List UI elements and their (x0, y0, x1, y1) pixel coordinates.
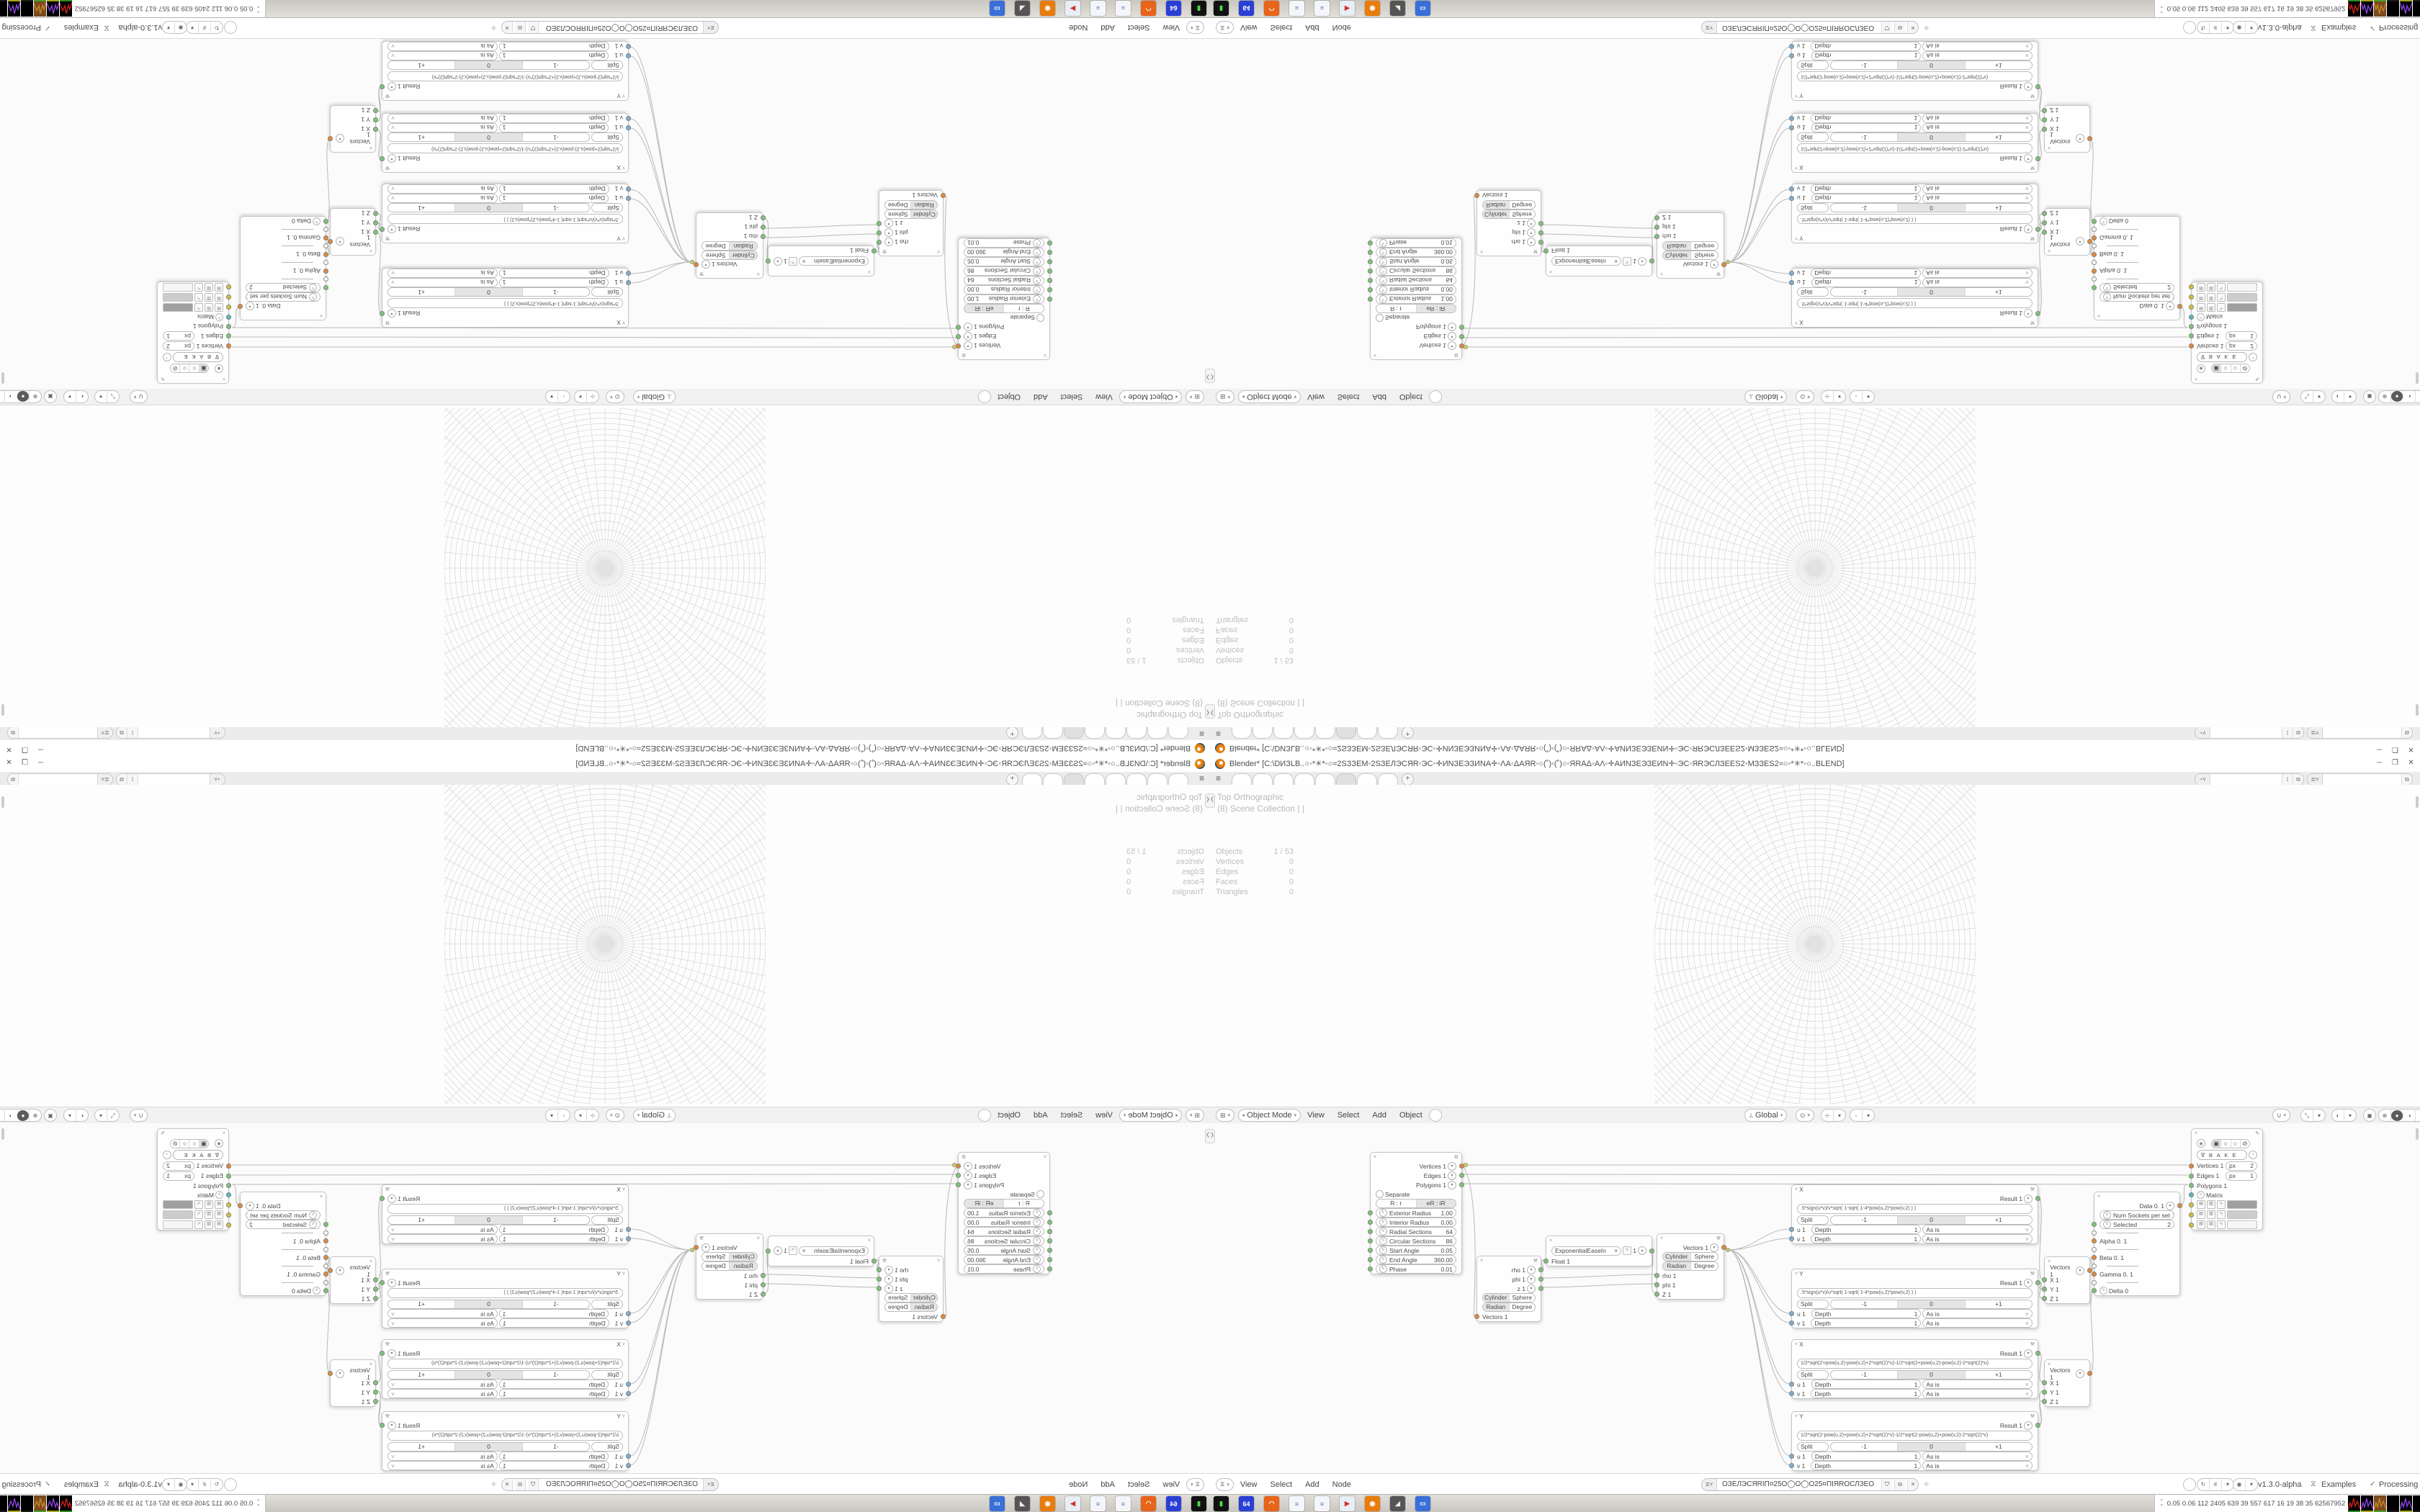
segment-option[interactable]: +1 (388, 204, 454, 212)
segment-option[interactable]: Cylinder (911, 1294, 938, 1302)
segment-option[interactable]: +1 (388, 62, 454, 70)
taskbar-icon-notepad[interactable]: ≡ (1090, 1496, 1106, 1511)
socket[interactable] (2035, 156, 2040, 161)
examples-menu[interactable]: Examples (2321, 1480, 2356, 1489)
segment-option[interactable]: -1 (1831, 1443, 1898, 1451)
palette-icon[interactable]: ▤ (2197, 1210, 2205, 1219)
curve-icon[interactable]: ∿ (2217, 303, 2226, 312)
socket[interactable] (1789, 44, 1794, 49)
draw-mode-option[interactable]: ⊘ (171, 365, 179, 373)
segment-option[interactable]: +1 (388, 1443, 454, 1451)
enum-dropdown[interactable]: As is˅ (1922, 194, 2033, 203)
node-header[interactable]: ˅X⚒ (382, 1185, 628, 1194)
view-layer-field[interactable] (19, 727, 97, 738)
menu-view[interactable]: View (1163, 1480, 1180, 1489)
socket[interactable] (2042, 1277, 2047, 1282)
color-swatch[interactable] (163, 293, 193, 302)
draw-mode-option[interactable]: ○ (2231, 365, 2241, 373)
mode-selector[interactable]: ▪Object Mode▾ (1238, 1109, 1301, 1122)
node-header[interactable]: ˅✎ (2192, 1129, 2262, 1138)
editor-scrollbar[interactable] (1, 372, 4, 384)
socket[interactable] (2092, 1264, 2097, 1269)
collapse-icon[interactable]: ˅ (622, 1187, 625, 1192)
pin-star-icon[interactable]: ✧ (490, 1480, 497, 1489)
expand-tray-icon[interactable]: ⌃⌃ (256, 1499, 261, 1509)
wrap-mode-switch[interactable]: -10+1 (387, 288, 590, 297)
chevron-down-icon[interactable]: ▾ (964, 1181, 972, 1189)
segment-option[interactable]: +1 (1966, 62, 2032, 70)
segment-option[interactable]: Sphere (702, 251, 730, 259)
node-header[interactable]: ˅⚙ (959, 351, 1049, 359)
collapse-icon[interactable]: ˅ (1795, 166, 1798, 171)
depth-field[interactable]: Depth1 (1811, 1309, 1922, 1318)
workspace-tab[interactable] (1252, 726, 1273, 739)
chevron-down-icon[interactable]: ▾ (774, 257, 782, 266)
menu-object[interactable]: Object (998, 1111, 1021, 1120)
workspace-tab[interactable] (1273, 726, 1294, 739)
node-data[interactable]: ˅Data 0. 1▾↻Num Sockets per set1↻Selecte… (240, 216, 326, 320)
toggle-circle[interactable] (1036, 1190, 1044, 1198)
depth-field[interactable]: Depth1 (1811, 51, 1922, 60)
enum-dropdown[interactable]: As is˅ (387, 1452, 498, 1461)
depth-field[interactable]: Depth1 (499, 1309, 609, 1318)
socket[interactable] (1368, 1266, 1373, 1272)
segment-option[interactable]: +1 (388, 134, 454, 142)
node-vector-in-2[interactable]: ˅Vectors 1▾X 1Y 1Z 1 (330, 105, 376, 153)
chevron-down-icon[interactable]: ▾ (246, 302, 254, 311)
draft-mode-button[interactable]: ◉▾ (2233, 22, 2258, 35)
socket[interactable] (626, 1320, 631, 1326)
node-formula-x2[interactable]: ˅X⚒Result 1▾1/2*sqrt(2+pow(u,2)-pow(v,2)… (382, 1339, 629, 1399)
segmented-switch[interactable]: CylinderSphere (1662, 1252, 1718, 1261)
taskbar-icon-firefox[interactable]: ◠ (1141, 1496, 1156, 1511)
socket[interactable] (323, 1280, 328, 1285)
node-vector-in-1[interactable]: ˅Vectors 1▾X 1Y 1Z 1 (330, 1256, 376, 1304)
number-field[interactable]: ↻Selected2 (246, 283, 321, 292)
collapse-icon[interactable]: ˅ (223, 1131, 225, 1136)
socket[interactable] (2092, 1255, 2097, 1260)
socket[interactable] (373, 1296, 378, 1301)
segment-option[interactable]: Sphere (1510, 210, 1536, 218)
segmented-switch[interactable]: CylinderSphere (702, 1252, 758, 1261)
depth-field[interactable]: Depth1 (499, 1461, 609, 1470)
socket[interactable] (626, 1227, 631, 1232)
socket[interactable] (626, 1391, 631, 1396)
socket[interactable] (877, 230, 882, 235)
node-tree-name[interactable]: ОЗЕЛЭСЯRIП¤25О◯О◯О25¤ПIЯRОСЛЗЕО (1719, 1480, 1879, 1488)
socket[interactable] (2189, 1202, 2194, 1207)
node-tree-name[interactable]: ОЗЕЛЭСЯRIП¤25О◯О◯О25¤ПIЯRОСЛЗЕО (541, 1480, 701, 1488)
socket[interactable] (2189, 1212, 2194, 1218)
number-field[interactable]: ↻Num Sockets per set1 (246, 1210, 321, 1220)
node-header[interactable]: ˅ (768, 1236, 874, 1245)
collapse-icon[interactable]: ˅ (1795, 1272, 1798, 1277)
close-button[interactable]: ✕ (4, 744, 14, 754)
segmented-switch[interactable]: RadianDegree (884, 1302, 938, 1312)
chevron-down-icon[interactable]: ▾ (2076, 135, 2084, 143)
chevron-down-icon[interactable]: ▾ (387, 1279, 396, 1287)
node-header[interactable]: ˅⚒ (1477, 1256, 1541, 1265)
socket[interactable] (373, 1380, 378, 1385)
copy-icon[interactable]: ⧉ (8, 774, 19, 785)
node-polar-out[interactable]: ˅⚒rho 1▾phi 1▾z 1▾CylinderSphereRadianDe… (1476, 1256, 1541, 1322)
segment-option[interactable]: 0 (1898, 204, 1965, 212)
formula-field[interactable]: .5*sign(u*v)/v*sqrt( 1-sqrt( 1-4*pow(u,2… (387, 298, 623, 308)
viewport-scrollbar[interactable] (1, 796, 4, 808)
easing-dropdown[interactable]: ExponentialEaseIn˅ (799, 1246, 869, 1256)
socket[interactable] (1047, 278, 1052, 283)
depth-field[interactable]: Depth1 (499, 1225, 609, 1234)
segment-option[interactable]: Degree (702, 1262, 730, 1270)
chevron-down-icon[interactable]: ▾ (387, 1349, 396, 1358)
menu-hamburger-icon[interactable]: ≡ (1216, 729, 1221, 739)
node-formula-x2[interactable]: ˅X⚒Result 1▾1/2*sqrt(2+pow(u,2)-pow(v,2)… (1791, 113, 2038, 173)
socket[interactable] (1543, 248, 1549, 253)
bake-button[interactable]: ∇B A K E (173, 352, 223, 362)
socket[interactable] (2177, 304, 2182, 309)
transform-widget-button[interactable] (978, 1109, 991, 1122)
socket[interactable] (226, 324, 231, 329)
socket[interactable] (323, 1255, 328, 1260)
restore-button[interactable]: ❐ (2390, 744, 2400, 754)
socket[interactable] (2092, 1280, 2097, 1285)
depth-field[interactable]: Depth1 (1811, 194, 1922, 203)
list-icon[interactable]: ▥ (2207, 293, 2215, 302)
segment-option[interactable]: 0 (1898, 1443, 1965, 1451)
display-toggle-icon[interactable]: ◉ (2197, 1139, 2205, 1148)
socket[interactable] (2042, 1380, 2047, 1385)
wrap-mode-switch[interactable]: -10+1 (1830, 204, 2033, 213)
socket[interactable] (1368, 1257, 1373, 1262)
tool-icon[interactable]: ⚒ (2030, 93, 2035, 99)
workspace-tab[interactable] (1168, 726, 1188, 739)
wrap-mode-switch[interactable]: -10+1 (1830, 1300, 2033, 1309)
node-header[interactable]: ˅X⚒ (1792, 1185, 2038, 1194)
segment-option[interactable]: Cylinder (1483, 1294, 1510, 1302)
wrap-mode-switch[interactable]: -10+1 (387, 1442, 590, 1452)
collapse-icon[interactable]: ˅ (2048, 248, 2051, 253)
examples-menu[interactable]: Examples (2321, 24, 2356, 32)
number-field[interactable]: ↻Interior Radius0.00 (964, 285, 1044, 294)
node-data[interactable]: ˅Data 0. 1▾↻Num Sockets per set1↻Selecte… (2094, 1192, 2180, 1296)
socket[interactable] (761, 1273, 766, 1278)
draw-mode-icons[interactable]: ▣○○⊘ (2211, 364, 2250, 374)
copy-icon[interactable]: ⧉ (1894, 22, 1905, 34)
enum-dropdown[interactable]: As is˅ (387, 114, 498, 123)
system-monitor-panel[interactable]: ⌃⌃ 0.05 0.06 112 2405 639 39 557 617 16 … (2154, 0, 2420, 17)
draft-mode-button[interactable]: ◉▾ (162, 22, 187, 35)
snap-magnet-button[interactable]: ∪▾ (130, 390, 148, 403)
proportional-falloff-button[interactable]: ⤡▾ (2300, 1109, 2326, 1122)
chevron-down-icon[interactable]: ▾ (2024, 1349, 2033, 1358)
transform-widget-button[interactable] (1429, 390, 1442, 403)
socket[interactable] (941, 193, 946, 198)
chevron-down-icon[interactable]: ▾ (1527, 220, 1536, 228)
socket[interactable] (2092, 285, 2097, 290)
scene-name-field[interactable] (2210, 774, 2282, 785)
snap-magnet-button[interactable]: ∪▾ (2272, 1109, 2290, 1122)
segment-option[interactable]: -1 (522, 1216, 589, 1224)
node-header[interactable]: ˅X⚒ (1792, 1340, 2038, 1349)
collapse-icon[interactable]: ˅ (2097, 1194, 2100, 1200)
segment-option[interactable]: +1 (1966, 1216, 2032, 1224)
menu-view[interactable]: View (1240, 24, 1258, 32)
node-header[interactable]: ˅⚒ (1657, 269, 1724, 278)
socket[interactable] (1543, 1259, 1549, 1264)
pencil-icon[interactable]: ✎ (161, 376, 165, 382)
taskbar-icon-speaker[interactable]: ◢ (1015, 1496, 1030, 1511)
node-cylinder[interactable]: ˅⚙Vertices 1▾Edges 1▾Polygons 1▾Separate… (1370, 1152, 1462, 1274)
update-cycle-button[interactable]: ↻#▾ (186, 1478, 223, 1491)
orientation-selector[interactable]: ⟂Global▾ (633, 390, 676, 403)
reroute-dot[interactable] (1726, 1248, 1730, 1252)
list-icon[interactable]: ▥ (2207, 283, 2215, 292)
segmented-switch[interactable]: R : reR : iR (964, 304, 1044, 313)
enum-dropdown[interactable]: As is˅ (387, 123, 498, 132)
taskbar-icon-firefox[interactable]: ◠ (1141, 1, 1156, 16)
workspace-tab[interactable] (1357, 773, 1377, 786)
chevron-down-icon[interactable]: ▾ (884, 220, 893, 228)
node-data[interactable]: ˅Data 0. 1▾↻Num Sockets per set1↻Selecte… (2094, 216, 2180, 320)
system-monitor-panel[interactable]: ⌃⌃ 0.05 0.06 112 2405 639 39 557 617 16 … (0, 1495, 266, 1512)
socket[interactable] (1459, 325, 1464, 330)
collapse-icon[interactable]: ˅ (622, 320, 625, 325)
segment-option[interactable]: +1 (1966, 289, 2032, 297)
socket[interactable] (373, 108, 378, 113)
taskbar-icon-floppy-64[interactable]: 64 (1239, 1, 1254, 16)
segment-option[interactable]: Cylinder (1663, 251, 1691, 259)
workspace-tab[interactable] (1106, 726, 1126, 739)
taskbar-icon-notepad[interactable]: ≡ (1314, 1496, 1330, 1511)
socket[interactable] (2092, 244, 2097, 249)
gear-icon[interactable]: ⚙ (962, 352, 966, 358)
socket[interactable] (1649, 1248, 1654, 1254)
segment-option[interactable]: 0 (454, 1443, 521, 1451)
node-header[interactable]: ˅⚒ (696, 269, 763, 278)
socket[interactable] (373, 211, 378, 216)
socket[interactable] (2035, 1351, 2040, 1356)
toggle-circle[interactable] (1376, 1190, 1384, 1198)
depth-field[interactable]: Depth1 (499, 51, 609, 60)
node-header[interactable]: ˅⚒ (696, 1234, 763, 1243)
segment-option[interactable]: -1 (1831, 62, 1898, 70)
segment-option[interactable]: -1 (522, 1443, 589, 1451)
editor-scrollbar[interactable] (2416, 1128, 2419, 1140)
segmented-switch[interactable]: CylinderSphere (702, 251, 758, 260)
curve-icon[interactable]: ∿ (2217, 1200, 2226, 1209)
taskbar-icon-notepad[interactable]: ≡ (1090, 1, 1106, 16)
n-panel-arrow[interactable]: ❯ (1210, 1129, 1215, 1143)
unlink-icon[interactable]: ✕ (1907, 22, 1918, 34)
node-formula-y2[interactable]: ˅Y⚒Result 1▾1/2*sqrt(2-pow(u,2)+pow(v,2)… (382, 41, 629, 101)
title-bar[interactable]: Blender* [C:\DИЗLB..○◦*✳*◦○≈2SЗЗEM◦2SЗЕЛ… (1210, 739, 2420, 756)
close-button[interactable]: ✕ (4, 758, 14, 768)
split-button[interactable]: Split (1797, 1370, 1829, 1380)
number-field[interactable]: ↻Exterior Radius1.00 (1376, 294, 1456, 304)
segment-option[interactable]: Sphere (1510, 1294, 1536, 1302)
enum-dropdown[interactable]: As is˅ (387, 1389, 498, 1398)
pivot-selector[interactable]: ⊙▾ (1796, 390, 1814, 403)
transform-widget-button[interactable] (978, 390, 991, 403)
socket[interactable] (2092, 219, 2097, 224)
enum-dropdown[interactable]: As is˅ (387, 1380, 498, 1389)
segment-option[interactable]: -1 (522, 289, 589, 297)
collapse-icon[interactable]: ˅ (1044, 1155, 1047, 1160)
menu-add[interactable]: Add (1034, 392, 1048, 401)
socket[interactable] (766, 259, 771, 264)
toolbar-collapse-arrow[interactable]: ❮ (1205, 704, 1210, 719)
collapse-icon[interactable]: ˅ (622, 94, 625, 99)
socket[interactable] (956, 1182, 961, 1187)
curve-icon[interactable]: ∿ (2217, 1210, 2226, 1219)
color-swatch[interactable] (163, 1220, 193, 1229)
formula-field[interactable]: .5*sign(u*v)/v*sqrt( 1-sqrt( 1-4*pow(u,2… (387, 1204, 623, 1214)
formula-field[interactable]: 1/2*sqrt(2-pow(u,2)+pow(v,2)+2*sqrt(2)*v… (1797, 1431, 2033, 1441)
pivot-selector[interactable]: ⊙▾ (606, 1109, 624, 1122)
split-button[interactable]: Split (1797, 204, 1829, 213)
segment-option[interactable]: Sphere (885, 1294, 911, 1302)
close-button[interactable]: ✕ (2406, 744, 2416, 754)
formula-field[interactable]: 1/2*sqrt(2-pow(u,2)+pow(v,2)+2*sqrt(2)*v… (387, 1431, 623, 1441)
chevron-down-icon[interactable]: ▾ (774, 1246, 782, 1255)
display-toggle-icon[interactable]: ◉ (2197, 364, 2205, 373)
add-workspace-button[interactable]: + (1006, 726, 1018, 739)
menu-object[interactable]: Object (998, 392, 1021, 401)
taskbar-icon-floppy-64[interactable]: 64 (1166, 1, 1181, 16)
socket[interactable] (1654, 1273, 1659, 1278)
socket[interactable] (1368, 250, 1373, 255)
shield-icon[interactable]: ⛉ (528, 22, 539, 34)
segment-option[interactable]: Degree (1510, 201, 1536, 209)
number-field[interactable]: ↻Phase0.01 (1376, 238, 1456, 248)
viewport-3d[interactable]: Top Orthographic (8) Scene Collection | … (0, 405, 1210, 727)
socket[interactable] (2092, 228, 2097, 233)
taskbar-icon-blender[interactable]: ◉ (1040, 1, 1055, 16)
tool-icon[interactable]: ⚒ (2030, 320, 2035, 325)
socket[interactable] (2087, 239, 2092, 244)
chevron-down-icon[interactable]: ▾ (1527, 1284, 1536, 1293)
taskbar-icon-speaker[interactable]: ◢ (1390, 1496, 1405, 1511)
node-header[interactable]: ˅⚙ (959, 1153, 1049, 1161)
collapse-icon[interactable]: ˅ (937, 249, 940, 254)
taskbar-icon-floppy-64[interactable]: 64 (1239, 1496, 1254, 1511)
socket[interactable] (1789, 1227, 1794, 1232)
socket[interactable] (2189, 1183, 2194, 1188)
snap-magnet-button[interactable]: ∪▾ (130, 1109, 148, 1122)
socket[interactable] (323, 285, 328, 290)
split-button[interactable]: Split (591, 288, 623, 297)
pixel-size-field[interactable]: px1 (163, 332, 194, 341)
formula-field[interactable]: 1/2*sqrt(2+pow(u,2)-pow(v,2)+2*sqrt(2)*u… (1797, 1359, 2033, 1369)
list-icon[interactable]: ▥ (2207, 1210, 2215, 1219)
socket[interactable] (761, 215, 766, 220)
view-layer-field[interactable] (19, 774, 97, 785)
split-button[interactable]: Split (591, 133, 623, 143)
socket[interactable] (877, 1286, 882, 1291)
tool-icon[interactable]: ⚒ (385, 320, 390, 325)
split-button[interactable]: Split (1797, 1215, 1829, 1225)
orientation-selector[interactable]: ⟂Global▾ (1744, 1109, 1787, 1122)
viewport-scrollbar[interactable] (2416, 704, 2419, 716)
menu-add[interactable]: Add (1305, 1480, 1319, 1489)
wrap-mode-switch[interactable]: -10+1 (1830, 288, 2033, 297)
menu-select[interactable]: Select (1337, 1111, 1360, 1120)
curve-icon[interactable]: ∿ (194, 283, 203, 292)
workspace-tab[interactable] (1378, 726, 1398, 739)
list-icon[interactable]: ▥ (205, 303, 213, 312)
easing-dropdown[interactable]: ExponentialEaseIn˅ (1551, 257, 1621, 266)
socket[interactable] (373, 127, 378, 132)
pin-icon[interactable]: ⟟ (2282, 774, 2293, 785)
pixel-size-field[interactable]: px1 (2226, 332, 2257, 341)
chevron-down-icon[interactable]: ▾ (1710, 1243, 1718, 1252)
node-editor[interactable]: ❯ ˅⚙Vertices 1▾Edges 1▾Polygons 1▾Separa… (1210, 1123, 2420, 1473)
copy-icon[interactable]: ⧉ (8, 727, 19, 738)
node-header[interactable]: ˅⚒ (879, 1256, 943, 1265)
bake-button[interactable]: ∇B A K E (2197, 352, 2247, 362)
segment-option[interactable]: Degree (702, 242, 730, 250)
update-cycle-button[interactable]: ↻#▾ (186, 22, 223, 35)
depth-field[interactable]: Depth1 (1811, 1318, 1921, 1328)
number-field[interactable]: ↻Interior Radius0.00 (1376, 285, 1456, 294)
socket[interactable] (380, 227, 385, 232)
examples-menu[interactable]: Examples (64, 1480, 99, 1489)
node-formula-y1[interactable]: ˅Y⚒Result 1▾.5*sign(u*v)/u*sqrt( 1-sqrt(… (1791, 1269, 2038, 1328)
title-bar[interactable]: Blender* [C:\DИЗLB..○◦*✳*◦○≈2SЗЗEM◦2SЗЕЛ… (0, 756, 1210, 773)
socket[interactable] (323, 1247, 328, 1252)
socket[interactable] (1047, 240, 1052, 246)
editor-scrollbar[interactable] (1, 1128, 4, 1140)
menu-add[interactable]: Add (1101, 24, 1115, 32)
shading-mode-switch[interactable]: ⊕●◑◔▾ (2378, 1109, 2420, 1122)
node-tree-selector[interactable]: ⧖˅ ОЗЕЛЭСЯRIП¤25О◯О◯О25¤ПIЯRОСЛЗЕО ⛉ ⧉ ✕ (501, 22, 719, 35)
snap-magnet-button[interactable]: ∪▾ (2272, 390, 2290, 403)
socket[interactable] (380, 1423, 385, 1428)
draw-mode-option[interactable]: ○ (189, 365, 199, 373)
segmented-switch[interactable]: R : reR : iR (1376, 1199, 1456, 1208)
node-viewer-draw[interactable]: ˅✎◉▣○○⊘∇B A K E◔Vertices 1px2Edges 1px1P… (2191, 1128, 2263, 1230)
segment-option[interactable]: -1 (1831, 1300, 1898, 1308)
socket[interactable] (1368, 1229, 1373, 1234)
reroute-dot[interactable] (1726, 260, 1730, 264)
pin-star-icon[interactable]: ✧ (1923, 23, 1930, 32)
socket[interactable] (1789, 271, 1794, 276)
color-swatch[interactable] (2227, 283, 2257, 292)
socket[interactable] (2092, 252, 2097, 257)
socket[interactable] (1538, 1277, 1543, 1282)
chevron-down-icon[interactable]: ▾ (2024, 310, 2033, 318)
socket[interactable] (1047, 1257, 1052, 1262)
blank-circle-button[interactable] (2183, 1478, 2196, 1491)
chevron-down-icon[interactable]: ▾ (964, 323, 972, 332)
chevron-down-icon[interactable]: ▾ (387, 83, 396, 91)
depth-field[interactable]: Depth1 (1811, 114, 1921, 123)
socket[interactable] (1789, 1454, 1794, 1459)
workspace-tab[interactable] (1168, 773, 1188, 786)
depth-field[interactable]: Depth1 (499, 1389, 609, 1398)
enum-dropdown[interactable]: As is˅ (387, 184, 498, 194)
workspace-tab[interactable] (1043, 773, 1063, 786)
proportional-falloff-button[interactable]: ⤡▾ (2300, 390, 2326, 403)
shield-icon[interactable]: ⛉ (528, 1479, 539, 1490)
socket[interactable] (323, 1288, 328, 1293)
node-header[interactable]: ˅X⚒ (382, 1340, 628, 1349)
taskbar-icon-window[interactable]: ▭ (990, 1496, 1005, 1511)
proportional-edit-toggle[interactable]: ◦▾ (1850, 1109, 1875, 1122)
socket[interactable] (626, 280, 631, 285)
socket[interactable] (328, 239, 333, 244)
enum-dropdown[interactable]: As is˅ (387, 1234, 498, 1243)
